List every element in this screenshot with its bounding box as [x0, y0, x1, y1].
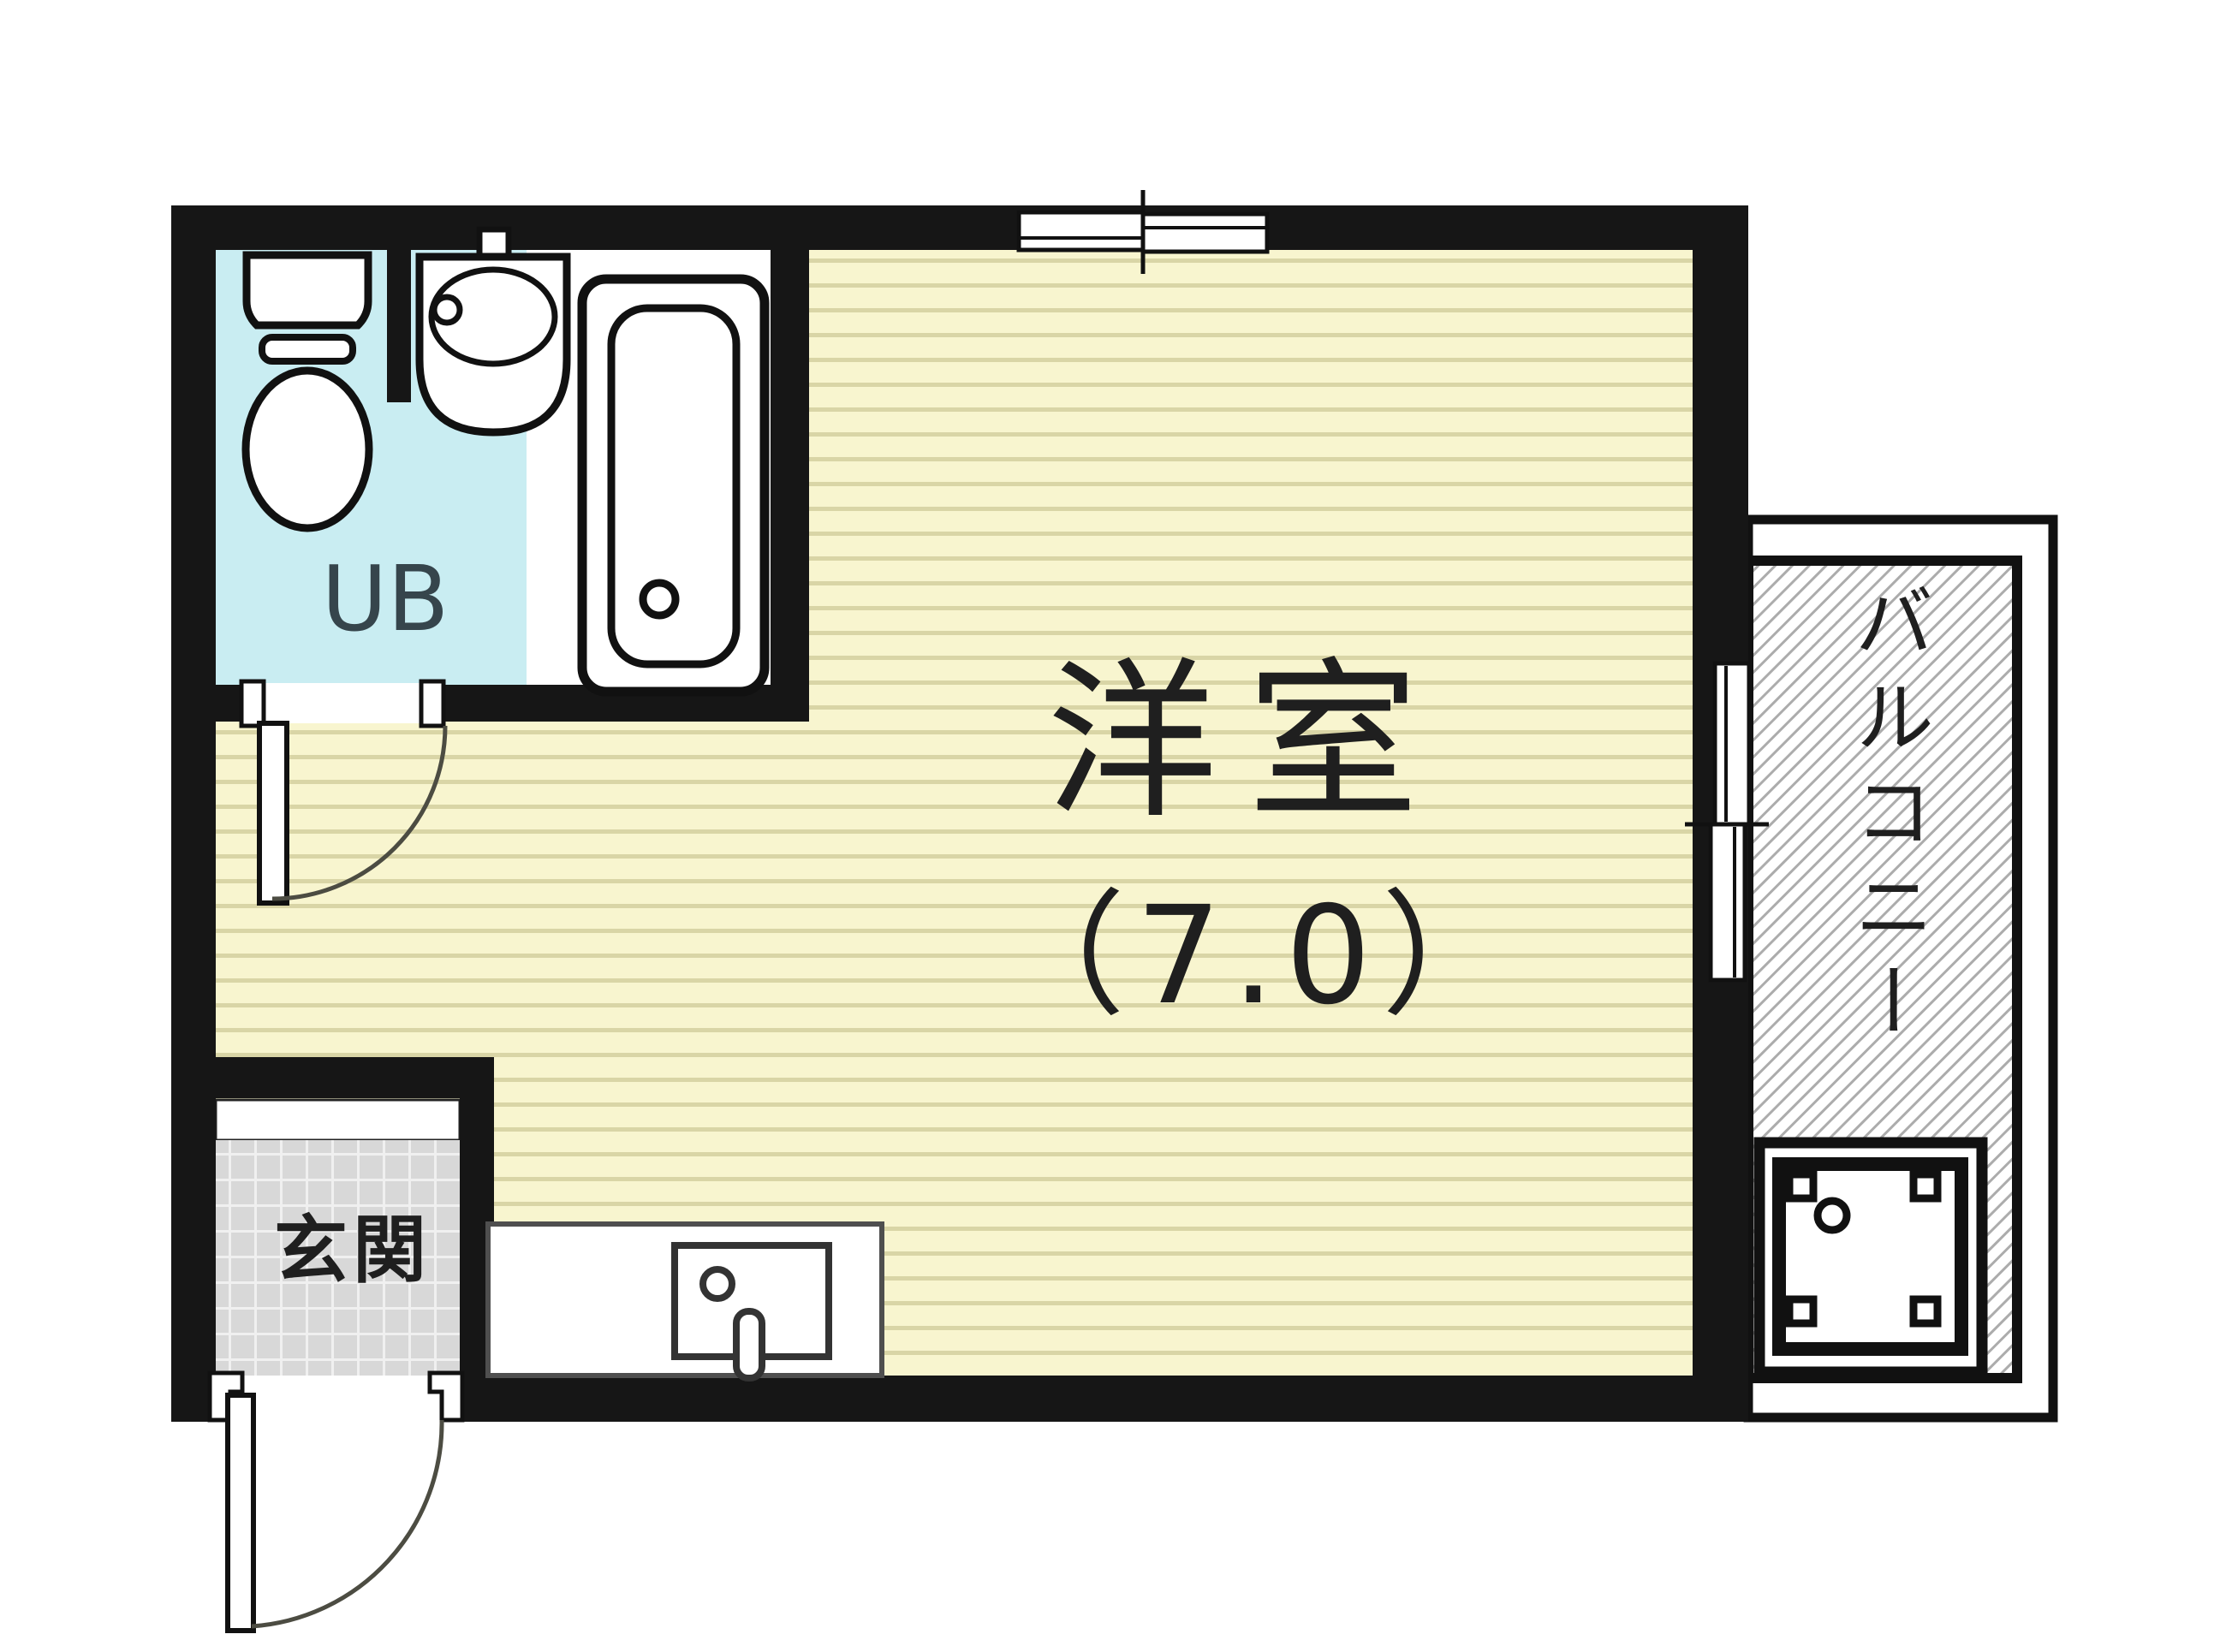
pan-corner-foot: [1789, 1299, 1813, 1323]
balcony-label: バルコニー: [1841, 580, 1926, 1128]
ub-door-jamb: [421, 681, 443, 726]
balcony-door-pane: [1711, 824, 1745, 980]
ub-door-threshold: [240, 683, 443, 723]
entrance-label: 玄関: [182, 1214, 524, 1287]
wall-ub-bottom-left: [216, 685, 241, 722]
washing-machine-pan: [1759, 1143, 1982, 1372]
wall-genkan-top: [216, 1057, 494, 1098]
bathtub-drain: [643, 583, 676, 615]
wall-bottom: [462, 1376, 1748, 1422]
main-room-size-label: （7.0）: [916, 888, 1601, 1024]
ub-door-jamb: [241, 681, 264, 726]
entrance-door-leaf: [228, 1395, 253, 1631]
pan-drain: [1818, 1201, 1847, 1230]
main-room-label: 洋室: [905, 657, 1590, 829]
unit-bath-label: UB: [257, 555, 514, 645]
wall-toilet-divider: [387, 250, 411, 402]
bathtub: [582, 279, 765, 692]
wall-bath-right: [771, 250, 809, 722]
toilet-seat-hinge: [262, 337, 353, 361]
entrance-step: [216, 1100, 460, 1140]
wall-top: [171, 205, 1748, 250]
pan-corner-foot: [1914, 1299, 1937, 1323]
window-pane: [1143, 214, 1267, 252]
toilet-bowl: [246, 371, 369, 528]
pan-corner-foot: [1914, 1174, 1937, 1198]
kitchen-sink-drain: [703, 1269, 732, 1298]
toilet: [246, 255, 369, 528]
wash-basin: [420, 229, 567, 432]
kitchen-counter: [488, 1224, 882, 1378]
floorplan-canvas: 洋室 （7.0） UB 玄関 バルコニー: [0, 0, 2226, 1652]
ub-door-leaf: [259, 723, 287, 903]
window-pane: [1019, 212, 1143, 250]
kitchen-faucet: [736, 1311, 762, 1378]
pan-corner-foot: [1789, 1174, 1813, 1198]
basin-drain: [434, 297, 460, 323]
balcony-door-pane: [1715, 663, 1749, 824]
toilet-tank: [247, 255, 368, 325]
